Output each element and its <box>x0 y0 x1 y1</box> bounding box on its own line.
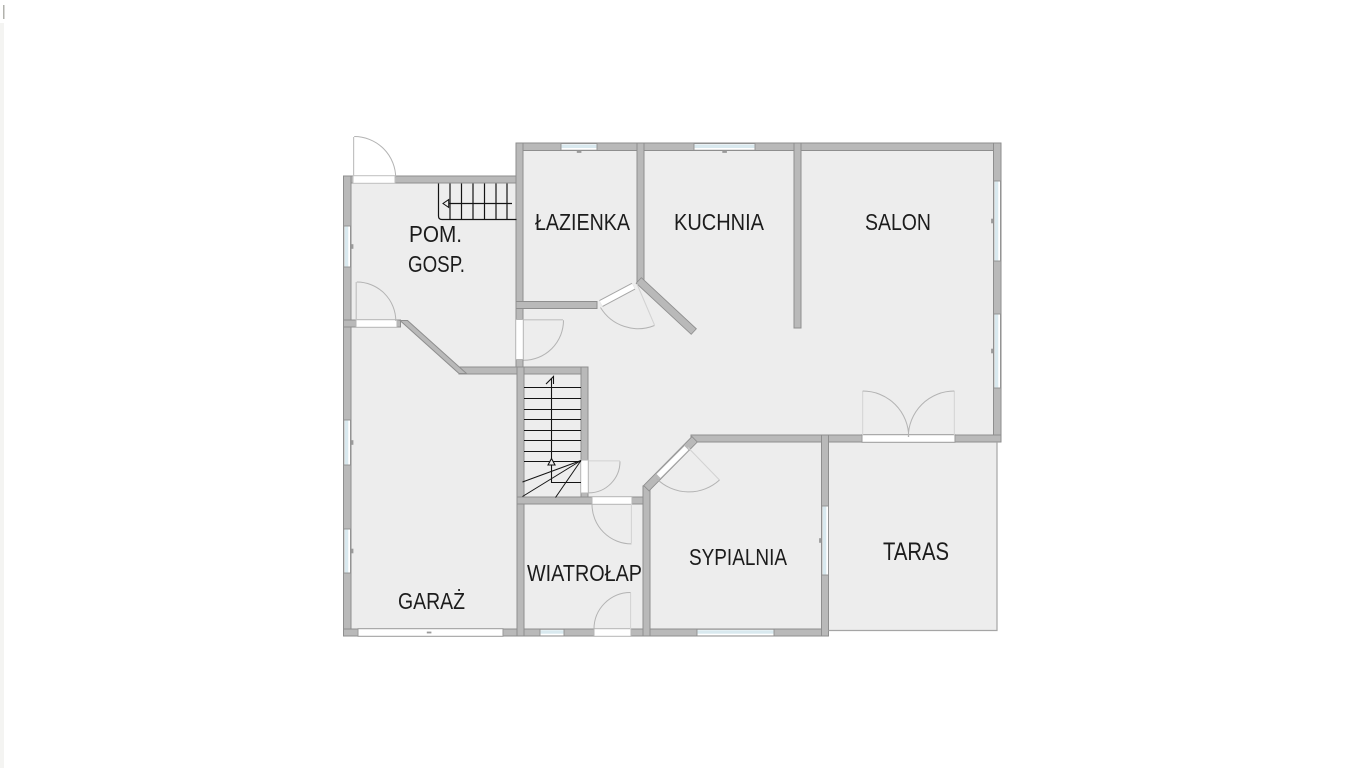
svg-text:WIATROŁAP: WIATROŁAP <box>527 560 642 586</box>
svg-text:GARAŻ: GARAŻ <box>398 588 465 614</box>
svg-text:ŁAZIENKA: ŁAZIENKA <box>535 209 631 235</box>
svg-text:POM.: POM. <box>409 221 462 247</box>
svg-text:KUCHNIA: KUCHNIA <box>674 209 765 235</box>
svg-text:GOSP.: GOSP. <box>408 251 465 277</box>
svg-text:SYPIALNIA: SYPIALNIA <box>689 544 788 570</box>
svg-text:TARAS: TARAS <box>883 538 949 566</box>
svg-text:SALON: SALON <box>865 209 931 235</box>
